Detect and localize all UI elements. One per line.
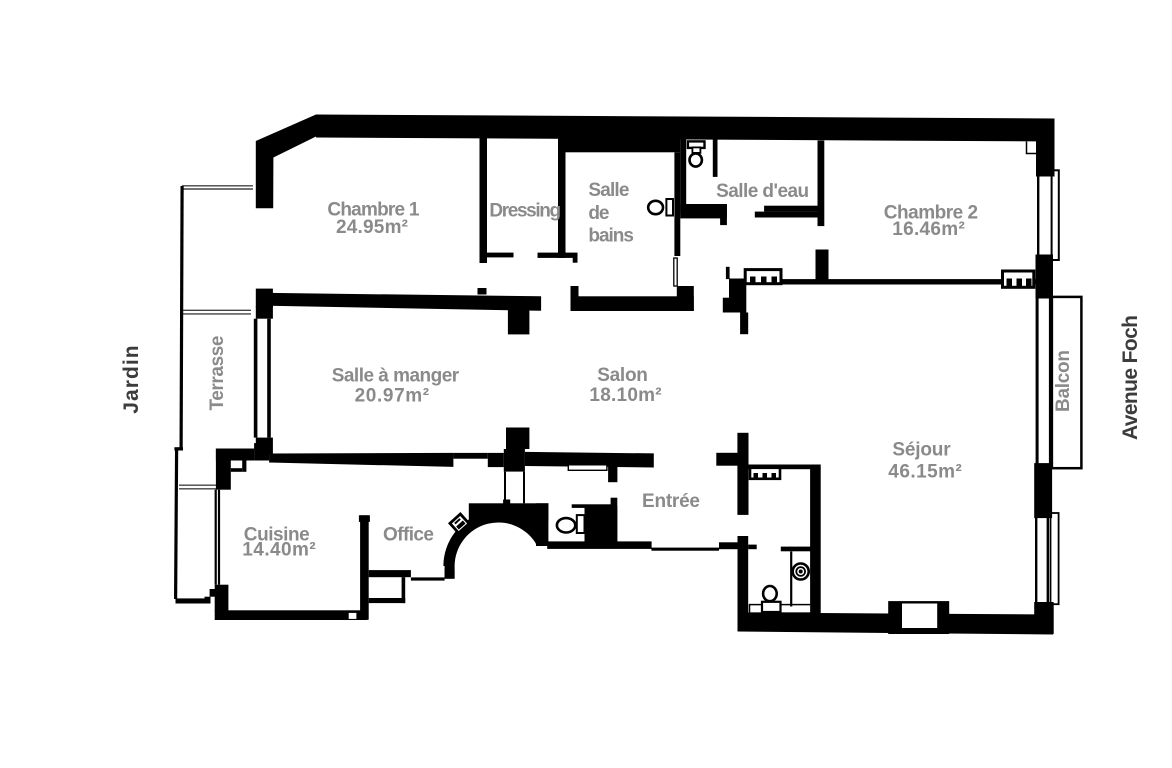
- svg-text:de: de: [588, 203, 609, 224]
- svg-text:Salon: Salon: [597, 365, 648, 386]
- svg-text:16.46m²: 16.46m²: [892, 219, 965, 240]
- svg-text:20.97m²: 20.97m²: [355, 385, 430, 406]
- svg-text:46.15m²: 46.15m²: [888, 461, 962, 482]
- svg-text:18.10m²: 18.10m²: [589, 385, 661, 406]
- svg-text:Salle d'eau: Salle d'eau: [716, 181, 809, 202]
- svg-text:Balcon: Balcon: [1053, 350, 1074, 412]
- svg-text:Jardin: Jardin: [120, 345, 143, 413]
- svg-text:bains: bains: [588, 226, 634, 247]
- svg-text:Séjour: Séjour: [892, 439, 951, 460]
- svg-text:Terrasse: Terrasse: [207, 336, 228, 411]
- svg-text:Salle à manger: Salle à manger: [332, 365, 460, 386]
- svg-text:Avenue Foch: Avenue Foch: [1119, 315, 1142, 440]
- svg-text:Dressing: Dressing: [489, 201, 561, 222]
- svg-text:Office: Office: [383, 525, 434, 546]
- svg-text:24.95m²: 24.95m²: [336, 217, 408, 238]
- svg-text:Salle: Salle: [588, 180, 629, 201]
- svg-text:Entrée: Entrée: [642, 491, 700, 512]
- svg-text:14.40m²: 14.40m²: [242, 540, 315, 561]
